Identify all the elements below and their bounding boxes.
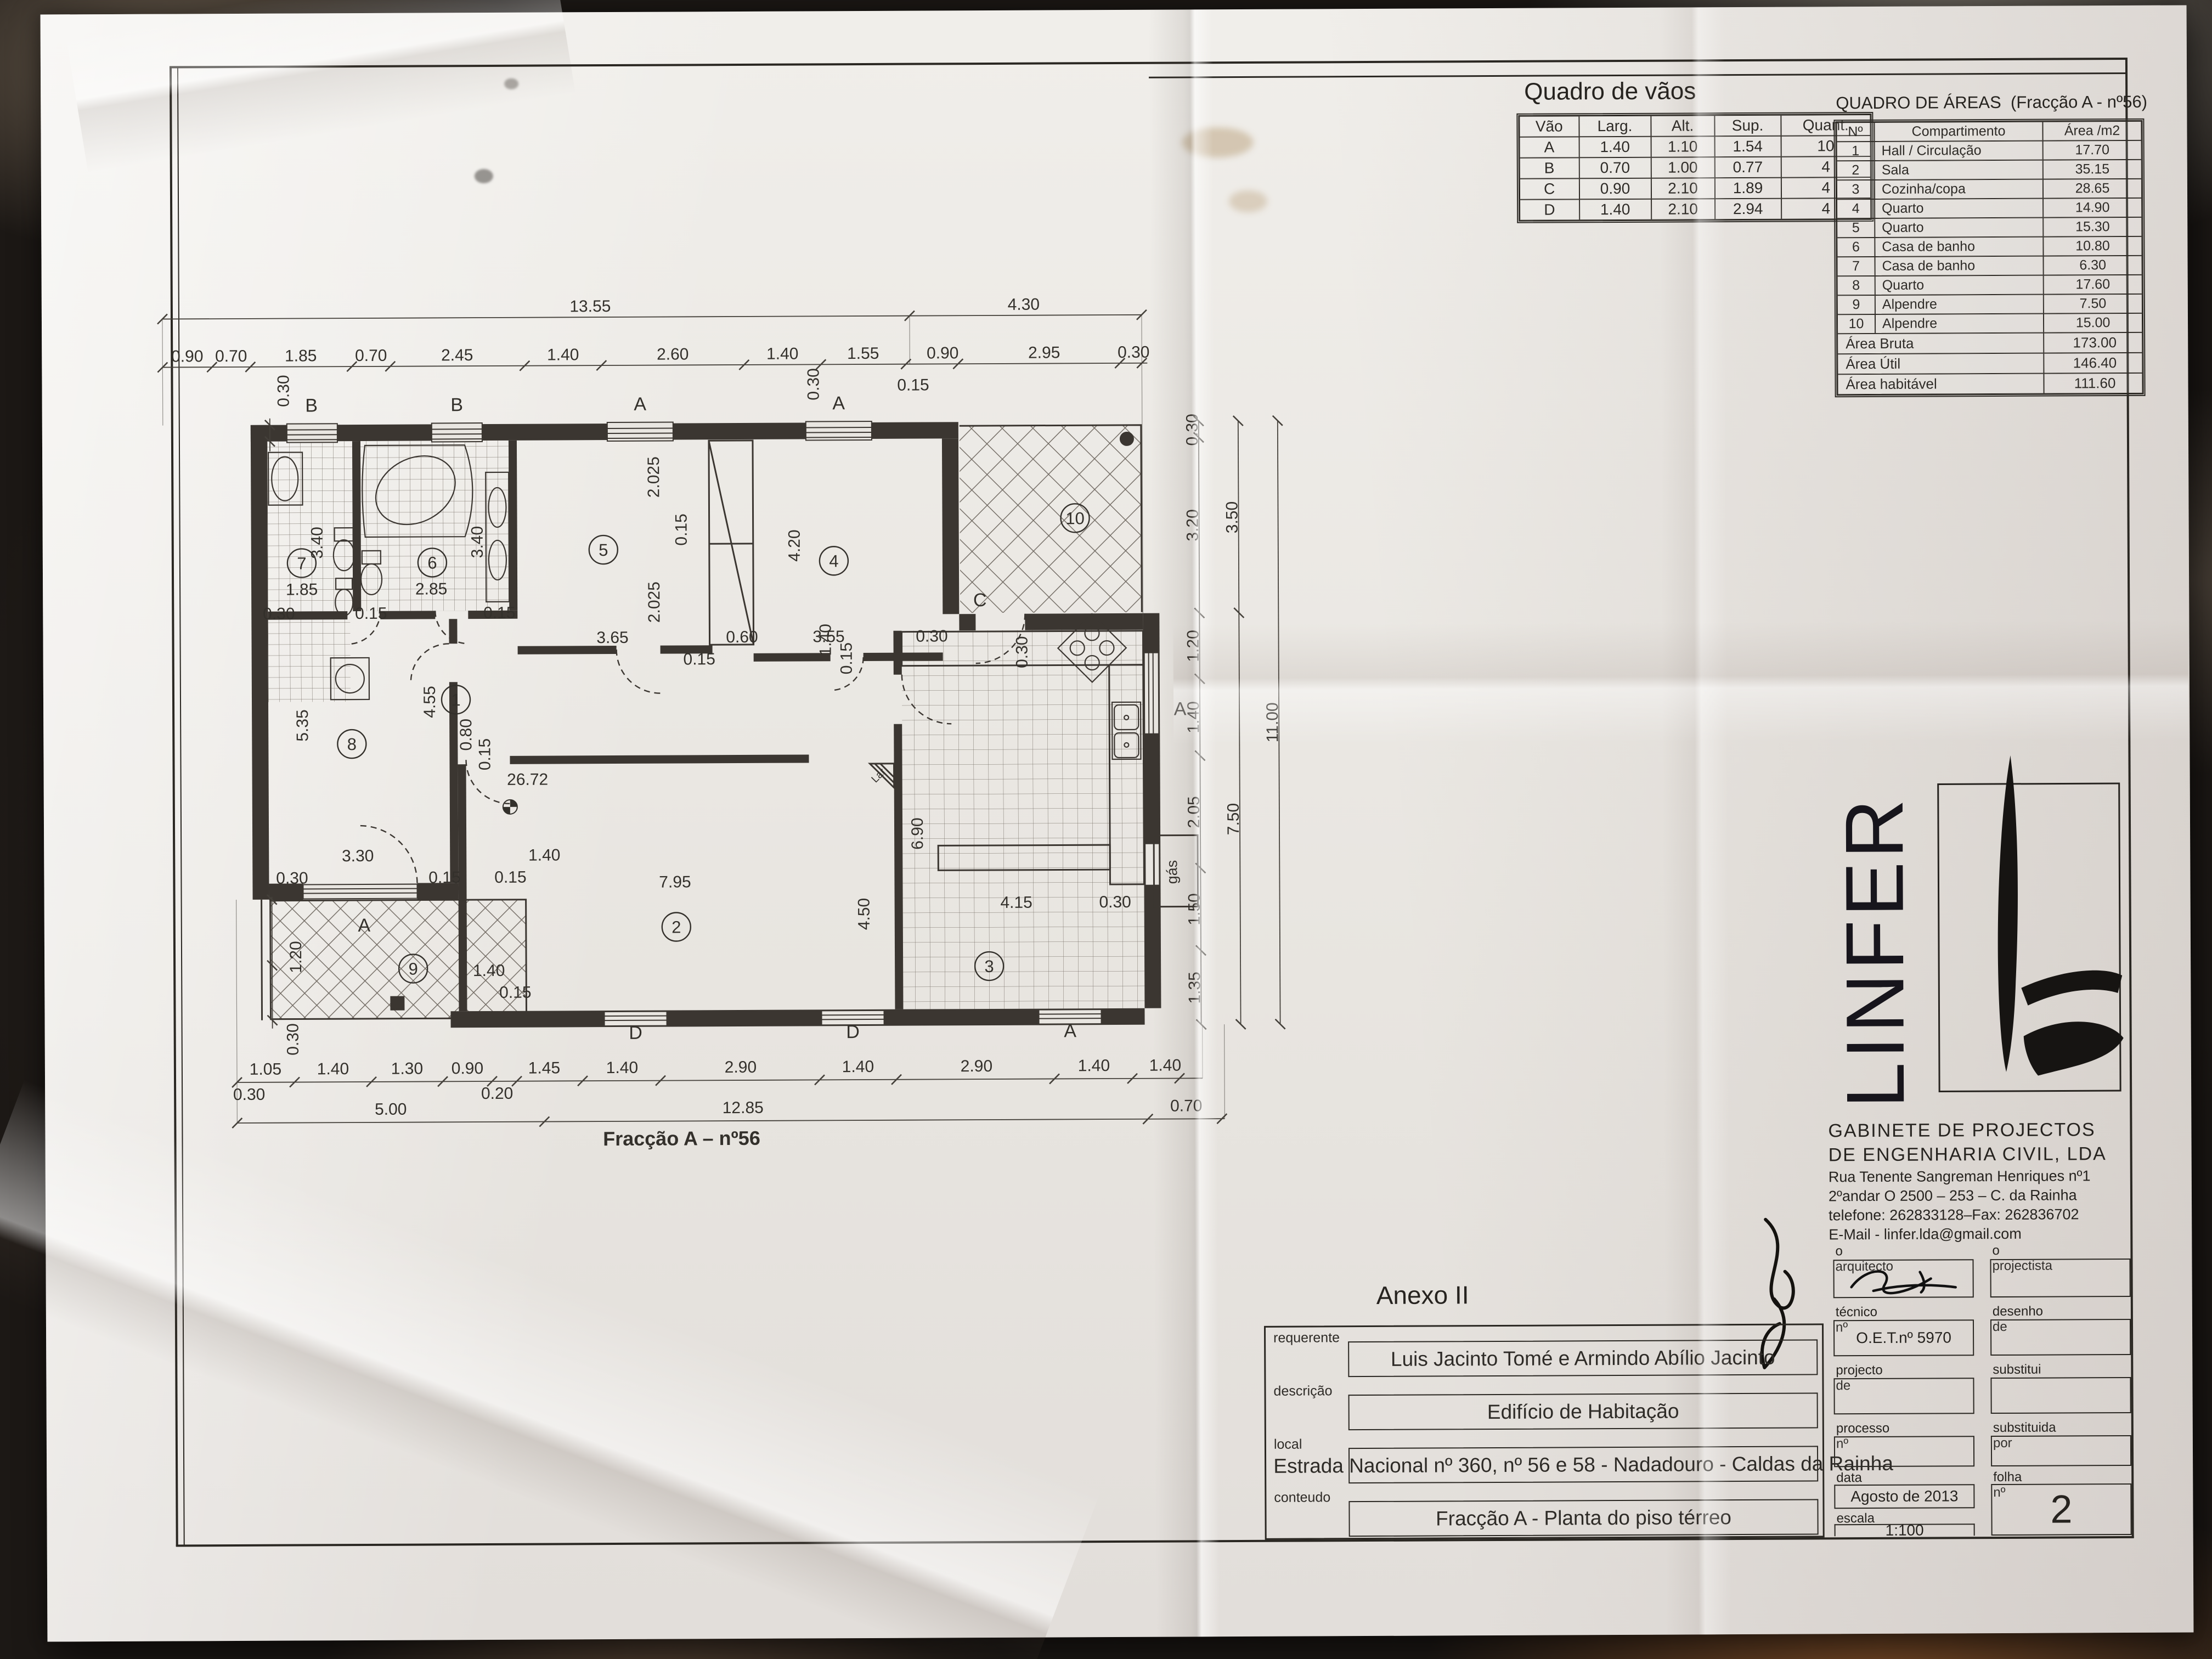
dimension-label: 12.85 [723, 1099, 764, 1117]
quadro-de-vaos: Quadro de vãos VãoLarg.Alt.Sup.Quant.A1.… [1516, 77, 1874, 223]
dimension-label: 0.30 [1099, 893, 1131, 911]
table-row: 2Sala35.15 [1837, 160, 2142, 180]
dimension-label: 1.40 [606, 1059, 639, 1077]
dimension-label: 2.85 [415, 580, 448, 598]
paper-stain [1182, 127, 1253, 158]
table-cell: Alpendre [1875, 295, 2044, 314]
paper-stain [504, 78, 518, 89]
dimension-label: 1.30 [391, 1060, 424, 1078]
table-row: C0.902.101.894 [1520, 177, 1871, 200]
dimension-label: 0.30 [263, 605, 295, 623]
table-row: D1.402.102.944 [1520, 198, 1871, 221]
dimension-label: 0.30 [276, 869, 308, 887]
annex-row: descriçãoEdifício de Habitação [1266, 1378, 1822, 1434]
dimension-label: 0.70 [215, 347, 247, 365]
company-address-line: Rua Tenente Sangreman Henriques nº1 [1829, 1169, 2158, 1185]
dimension-label: 0.80 [457, 719, 475, 751]
table-row: 7Casa de banho6.30 [1837, 256, 2142, 276]
table-cell: 1.40 [1579, 137, 1651, 158]
box-projectista [1990, 1259, 2130, 1297]
annex-field-value: Estrada Nacional nº 360, nº 56 e 58 - Na… [1348, 1446, 1818, 1483]
label-substitui: substitui [1993, 1362, 2041, 1378]
frame-bottom-line [176, 1536, 2134, 1547]
table-cell: Quarto [1875, 199, 2043, 218]
dimension-label: 1.85 [286, 580, 318, 599]
box-data: Agosto de 2013 [1834, 1484, 1974, 1509]
totals-cell: 111.60 [2044, 373, 2143, 394]
dimension-label: 1.85 [285, 347, 317, 365]
arquitecto-signature [1843, 1262, 1964, 1295]
annex-row: localEstrada Nacional nº 360, nº 56 e 58… [1266, 1431, 1822, 1487]
dimension-label: 0.15 [673, 513, 691, 546]
dimension-label: 7.50 [1224, 803, 1243, 836]
dimension-label: 2.90 [961, 1057, 993, 1075]
box-substituida [1991, 1435, 2131, 1466]
table-cell: 1.54 [1714, 136, 1781, 157]
box-escala: 1:100 [1835, 1523, 1975, 1536]
column-header: Sup. [1714, 115, 1781, 137]
annex-row: requerenteLuis Jacinto Tomé e Armindo Ab… [1266, 1325, 1822, 1380]
table-cell: 1.89 [1714, 178, 1781, 199]
annex-field-label: requerente [1273, 1330, 1340, 1346]
opening-letter: A [1064, 1020, 1076, 1041]
table-row: 9Alpendre7.50 [1837, 294, 2142, 314]
table-cell: D [1520, 199, 1579, 220]
company-name-line: DE ENGENHARIA CIVIL, LDA [1829, 1144, 2158, 1165]
company-email-line: E-Mail - linfer.lda@gmail.com [1829, 1226, 2158, 1243]
dimension-label: 1.05 [250, 1060, 282, 1079]
table-cell: Sala [1875, 160, 2043, 180]
dimension-label: 1.40 [1184, 701, 1203, 733]
column-header: Compartimento [1874, 122, 2042, 142]
dimension-label: 0.20 [481, 1085, 513, 1103]
dimension-label: 1.35 [1186, 972, 1204, 1004]
table-row: 6Casa de banho10.80 [1837, 236, 2142, 257]
totals-row: Área Bruta173.00 [1837, 332, 2142, 354]
dimension-label: 2.90 [725, 1058, 757, 1076]
table-cell: 17.60 [2044, 275, 2142, 295]
table-cell: C [1520, 178, 1579, 199]
opening-letter: C [973, 590, 987, 611]
dimension-label: 1.40 [473, 962, 505, 980]
opening-letter: B [450, 394, 463, 415]
floor-plan-drawing: 13.554.300.900.701.850.702.451.402.601.4… [157, 289, 1313, 1160]
paper-crease-top [65, 0, 575, 173]
table-cell: Casa de banho [1875, 237, 2043, 257]
table-cell: 0.77 [1714, 157, 1781, 178]
dimension-label: 1.40 [317, 1060, 349, 1078]
box-desenho [1990, 1319, 2131, 1356]
box-arquitecto [1833, 1259, 1973, 1298]
room-number: 8 [337, 730, 366, 758]
table-cell: 10 [1837, 314, 1875, 334]
box-projecto [1833, 1378, 1974, 1414]
dimension-label: 3.50 [1223, 501, 1241, 534]
dimension-label: 1.50 [1186, 893, 1204, 926]
totals-row: Área habitável111.60 [1837, 373, 2142, 394]
plan-text: Fracção A – nº56 [603, 1127, 760, 1150]
table-cell: 15.30 [2043, 217, 2142, 237]
opening-letter: D [629, 1023, 642, 1043]
table-cell: Casa de banho [1875, 256, 2043, 276]
dimension-label: 2.95 [1028, 343, 1060, 362]
annex-field-value: Luis Jacinto Tomé e Armindo Abílio Jacin… [1348, 1339, 1818, 1377]
table-cell: Quarto [1875, 275, 2044, 295]
table-cell: 0.70 [1579, 157, 1651, 179]
annex-field-label: descrição [1273, 1383, 1332, 1399]
quadro-vaos-table: VãoLarg.Alt.Sup.Quant.A1.401.101.5410B0.… [1516, 112, 1874, 223]
dimension-label: 0.60 [726, 628, 758, 646]
opening-letter: A [1174, 698, 1187, 719]
quadro-areas-title: QUADRO DE ÁREAS (Fracção A - nº56) [1836, 92, 2144, 113]
table-cell: 0.90 [1579, 178, 1651, 200]
dimension-label: 3.30 [342, 847, 374, 865]
table-cell: 1.40 [1579, 199, 1651, 221]
dimension-label: 0.15 [483, 604, 516, 622]
table-cell: 1.10 [1651, 136, 1714, 157]
table-cell: 2.10 [1651, 178, 1714, 199]
dimension-label: 4.15 [1000, 894, 1032, 912]
svg-text:6: 6 [427, 553, 437, 572]
svg-text:1: 1 [451, 690, 460, 709]
dimension-label: 4.30 [1008, 296, 1040, 314]
svg-text:10: 10 [1065, 509, 1085, 528]
quadro-areas-table: NºCompartimentoÁrea /m21Hall / Circulaçã… [1833, 119, 2145, 397]
dimension-label: 2.025 [645, 582, 663, 623]
company-info: GABINETE DE PROJECTOS DE ENGENHARIA CIVI… [1828, 1120, 2158, 1247]
dimension-label: 3.20 [1184, 509, 1202, 541]
dimension-label: 2.60 [657, 345, 689, 363]
table-cell: 2.94 [1715, 199, 1781, 220]
table-row: 10Alpendre15.00 [1837, 313, 2142, 334]
company-address-line: 2ºandar O 2500 – 253 – C. da Rainha [1829, 1188, 2158, 1204]
dimension-label: 7.95 [659, 873, 691, 891]
table-cell: 9 [1837, 295, 1875, 314]
photo-of-floor-plan: 13.554.300.900.701.850.702.451.402.601.4… [0, 0, 2212, 1659]
totals-cell: Área habitável [1837, 374, 2044, 395]
table-cell: 15.00 [2044, 313, 2142, 333]
dimension-label: 0.15 [428, 868, 461, 887]
dimension-label: 0.15 [897, 376, 929, 394]
svg-text:5: 5 [599, 540, 608, 560]
dimension-label: 1.40 [547, 346, 579, 364]
svg-text:3: 3 [984, 957, 994, 976]
table-cell: 7 [1837, 257, 1875, 276]
annex-row: conteudoFracção A - Planta do piso térre… [1266, 1485, 1822, 1540]
anexo-label: Anexo II [1376, 1280, 1469, 1310]
table-cell: 1.00 [1651, 157, 1714, 178]
dimension-label: 3.40 [308, 527, 326, 559]
room-number: 5 [589, 535, 618, 564]
dimension-label: 0.15 [683, 650, 715, 668]
table-row: 5Quarto15.30 [1837, 217, 2142, 238]
dimension-label: 0.30 [1183, 414, 1201, 446]
dimension-label: 0.30 [284, 1023, 302, 1056]
dimension-label: 0.15 [838, 642, 856, 675]
table-row: A1.401.101.5410 [1520, 136, 1871, 158]
dimension-label: 6.90 [909, 817, 927, 850]
dimension-label: 3.40 [469, 526, 487, 558]
dimension-label: 1.40 [528, 846, 561, 864]
dimension-label: 1.20 [1184, 630, 1202, 662]
table-cell: 4 [1837, 199, 1875, 218]
dimension-label: 0.15 [499, 984, 532, 1002]
box-folha: 2 [1991, 1483, 2131, 1536]
annex-field-label: conteudo [1274, 1489, 1330, 1505]
svg-text:8: 8 [347, 735, 357, 754]
annex-field-value: Fracção A - Planta do piso térreo [1348, 1499, 1818, 1537]
column-header: Larg. [1579, 116, 1651, 137]
table-cell: 2.10 [1651, 199, 1715, 220]
frame-top-line [170, 58, 2126, 69]
table-cell: 14.90 [2043, 198, 2142, 218]
totals-cell: 146.40 [2044, 353, 2142, 374]
table-cell: B [1520, 157, 1579, 178]
dimension-label: 5.35 [294, 709, 312, 742]
dimension-label: 13.55 [569, 297, 611, 315]
dimension-label: 2.45 [441, 346, 473, 364]
table-cell: Hall / Circulação [1875, 141, 2043, 161]
opening-letter: A [832, 393, 845, 414]
table-cell: A [1520, 137, 1579, 157]
table-cell: 6 [1837, 238, 1875, 257]
dimension-label: 2.05 [1185, 796, 1203, 828]
table-cell: 3 [1837, 180, 1875, 199]
svg-text:7: 7 [297, 554, 306, 573]
dimension-label: 1.55 [847, 345, 879, 363]
table-cell: 7.50 [2044, 294, 2142, 314]
paper-stain [475, 169, 493, 183]
dimension-label: 0.30 [1013, 636, 1031, 668]
floor-hatches [267, 425, 1145, 1019]
dimension-label: 0.30 [1118, 343, 1150, 362]
dimension-label: 4.55 [421, 686, 439, 718]
dimension-label: 1.20 [287, 941, 305, 973]
dimension-label: 0.70 [355, 347, 387, 365]
dimension-label: 0.30 [274, 375, 292, 407]
table-row: 4Quarto14.90 [1837, 198, 2142, 218]
linfer-brush-mark [1928, 751, 2132, 1114]
table-row: B0.701.000.774 [1520, 156, 1871, 179]
table-cell: 17.70 [2043, 140, 2142, 160]
dimension-label: 0.30 [804, 368, 822, 400]
dimension-label: 11.00 [1263, 702, 1282, 742]
elevation-marker [503, 800, 517, 814]
dimension-label: 3.65 [596, 629, 629, 647]
opening-letter: A [634, 394, 646, 415]
paper-stain [1229, 190, 1267, 212]
company-phone-line: telefone: 262833128–Fax: 262836702 [1829, 1207, 2158, 1223]
dimension-label: 0.90 [452, 1059, 484, 1077]
dimension-label: 1.40 [766, 345, 799, 363]
plan-text: gás [1164, 860, 1180, 884]
opening-letter: B [305, 395, 318, 416]
table-cell: 6.30 [2044, 256, 2142, 275]
dimension-label: 0.30 [233, 1086, 266, 1104]
svg-text:2: 2 [672, 917, 681, 936]
totals-cell: Área Útil [1837, 353, 2044, 375]
totals-row: Área Útil146.40 [1837, 353, 2142, 374]
paper-crease-diagonal [0, 1080, 1102, 1659]
dimension-label: 1.45 [528, 1059, 561, 1077]
quadro-vaos-title: Quadro de vãos [1524, 77, 1873, 106]
box-substitui [1990, 1377, 2131, 1414]
dimension-label: 4.50 [855, 898, 873, 930]
opening-letter: D [846, 1022, 860, 1042]
dimension-label: 1.40 [816, 624, 834, 656]
plan-text: 26.72 [507, 771, 548, 789]
svg-text:4: 4 [829, 551, 838, 571]
svg-text:9: 9 [408, 960, 417, 979]
dimension-label: 0.70 [1170, 1097, 1203, 1115]
dimension-label: 0.15 [476, 738, 494, 771]
table-cell: 28.65 [2043, 179, 2142, 199]
annex-title-block: requerenteLuis Jacinto Tomé e Armindo Ab… [1264, 1323, 1825, 1539]
dimension-label: 2.025 [645, 456, 663, 498]
table-row: 3Cozinha/copa28.65 [1837, 179, 2142, 199]
dimension-label: 4.20 [786, 529, 804, 562]
table-cell: Alpendre [1875, 314, 2044, 334]
column-header: Nº [1836, 122, 1874, 142]
table-row: 8Quarto17.60 [1837, 275, 2142, 295]
company-name-line: GABINETE DE PROJECTOS [1828, 1120, 2157, 1141]
column-header: Vão [1519, 116, 1579, 137]
paper-crease-horizontal [1173, 619, 2188, 744]
dimension-label: 5.00 [375, 1101, 407, 1119]
table-cell: 35.15 [2043, 160, 2142, 179]
table-cell: Quarto [1875, 218, 2043, 238]
linfer-logo: LINFER [1826, 751, 2135, 1114]
quadro-de-areas: QUADRO DE ÁREAS (Fracção A - nº56) NºCom… [1833, 92, 2145, 397]
table-cell: 1 [1837, 142, 1875, 161]
column-header: Alt. [1651, 115, 1714, 137]
dimension-label: 0.90 [171, 347, 204, 365]
table-row: 1Hall / Circulação17.70 [1837, 140, 2142, 161]
annex-field-value: Edifício de Habitação [1348, 1392, 1818, 1430]
dimension-label: 0.15 [494, 868, 527, 887]
annex-field-label: local [1274, 1437, 1302, 1453]
dimension-label: 1.40 [842, 1058, 874, 1076]
room-number: 2 [662, 912, 691, 941]
dimension-label: 0.15 [355, 605, 387, 623]
dimension-label: 1.40 [1078, 1057, 1110, 1075]
table-cell: 10.80 [2043, 236, 2142, 256]
dimension-label: 1.40 [1149, 1056, 1182, 1074]
paper-sheet: 13.554.300.900.701.850.702.451.402.601.4… [41, 5, 2194, 1641]
column-header: Área /m2 [2043, 121, 2142, 141]
box-tecnico: O.E.T.nº 5970 [1833, 1319, 1974, 1356]
totals-cell: Área Bruta [1837, 333, 2044, 354]
room-number: 4 [820, 546, 848, 575]
dimension-label: 0.90 [927, 344, 959, 362]
table-cell: 2 [1837, 161, 1875, 180]
linfer-wordmark: LINFER [1826, 757, 1943, 1108]
table-cell: 5 [1837, 218, 1875, 238]
table-cell: Cozinha/copa [1875, 179, 2043, 199]
dimension-label: 0.30 [916, 627, 948, 645]
opening-letter: A [358, 915, 370, 936]
totals-cell: 173.00 [2044, 332, 2142, 353]
table-cell: 8 [1837, 276, 1875, 295]
